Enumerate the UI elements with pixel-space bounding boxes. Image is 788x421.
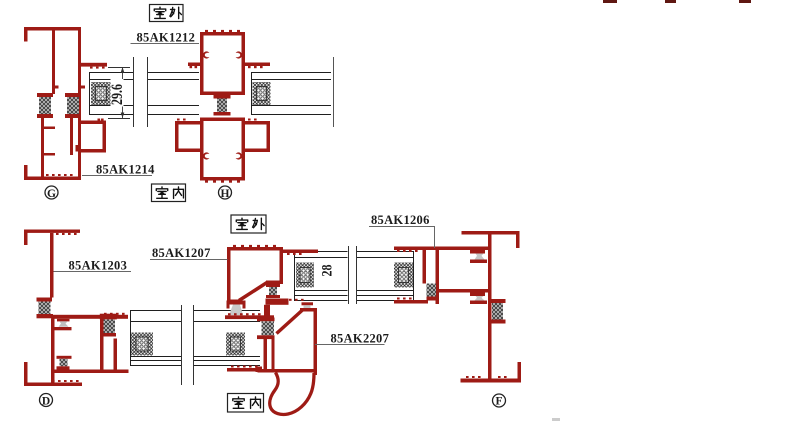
svg-text:85AK1212: 85AK1212 [137, 31, 196, 45]
svg-text:29.6: 29.6 [109, 84, 126, 105]
svg-text:85AK1203: 85AK1203 [69, 258, 128, 272]
svg-text:85AK1214: 85AK1214 [96, 162, 155, 176]
svg-text:G: G [47, 188, 56, 200]
svg-text:85AK1206: 85AK1206 [371, 213, 430, 227]
svg-text:H: H [221, 188, 230, 200]
svg-text:85AK1207: 85AK1207 [152, 246, 211, 260]
svg-text:28: 28 [318, 264, 335, 276]
svg-text:D: D [42, 396, 50, 408]
svg-text:85AK2207: 85AK2207 [331, 332, 390, 346]
svg-text:F: F [495, 396, 502, 408]
